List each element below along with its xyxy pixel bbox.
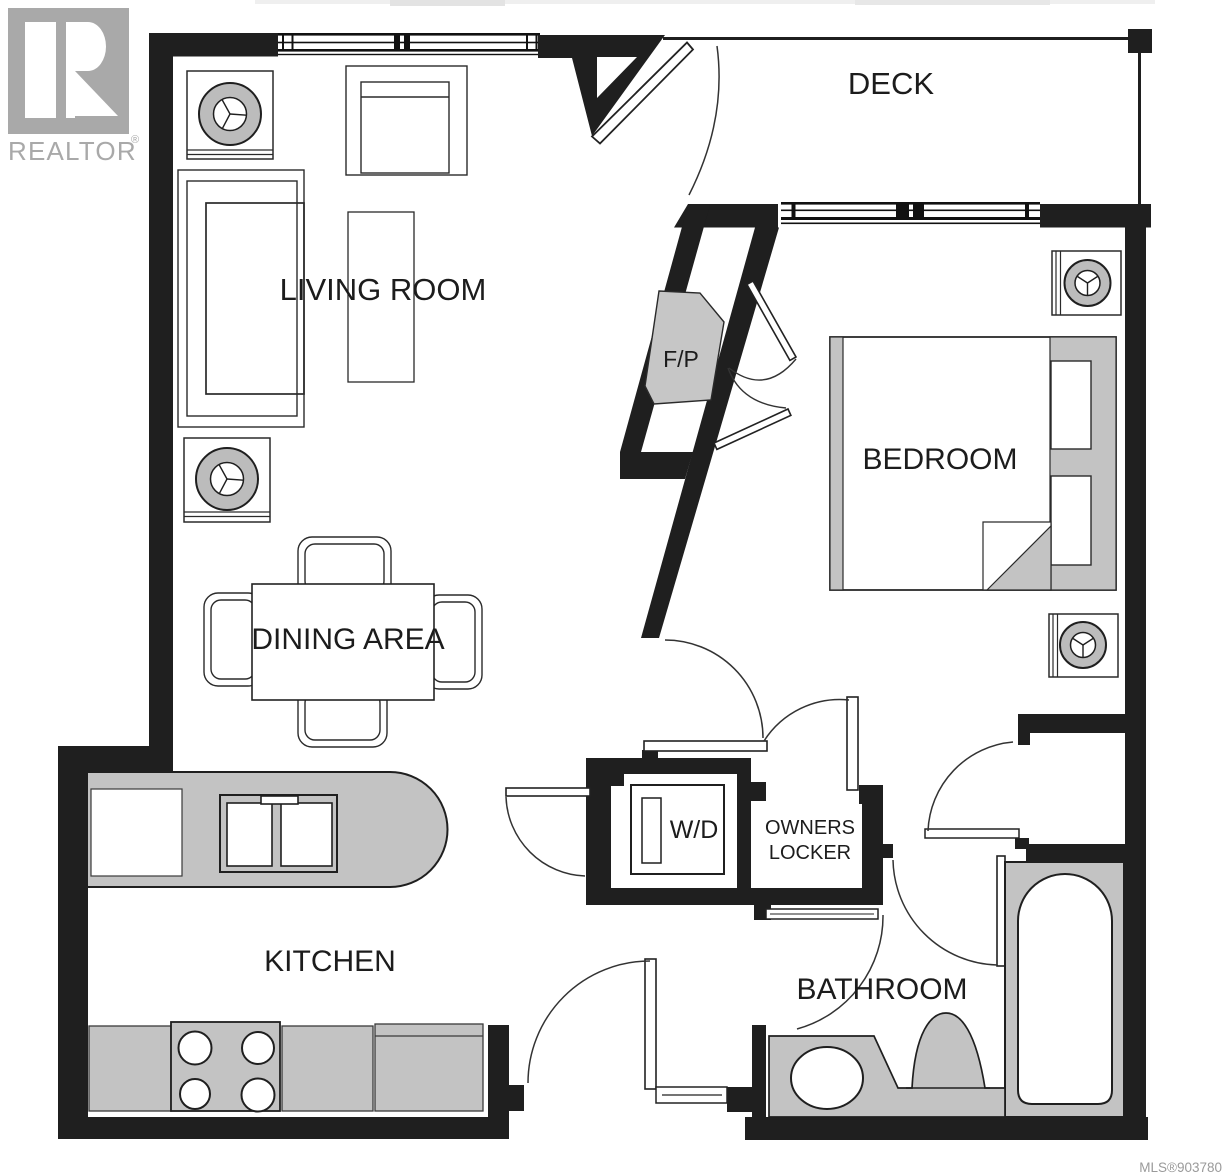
svg-text:KITCHEN: KITCHEN bbox=[264, 945, 396, 978]
svg-text:W/D: W/D bbox=[670, 816, 719, 844]
svg-text:LOCKER: LOCKER bbox=[769, 842, 851, 864]
svg-text:BATHROOM: BATHROOM bbox=[796, 973, 967, 1006]
svg-text:DINING AREA: DINING AREA bbox=[251, 623, 444, 656]
svg-text:F/P: F/P bbox=[663, 346, 699, 372]
svg-text:MLS®903780: MLS®903780 bbox=[1139, 1160, 1222, 1175]
svg-text:LIVING ROOM: LIVING ROOM bbox=[280, 272, 487, 307]
svg-text:REALTOR: REALTOR bbox=[8, 136, 137, 166]
svg-text:DECK: DECK bbox=[848, 66, 934, 101]
svg-text:BEDROOM: BEDROOM bbox=[862, 443, 1017, 476]
svg-text:®: ® bbox=[131, 134, 139, 146]
svg-text:OWNERS: OWNERS bbox=[765, 817, 855, 839]
